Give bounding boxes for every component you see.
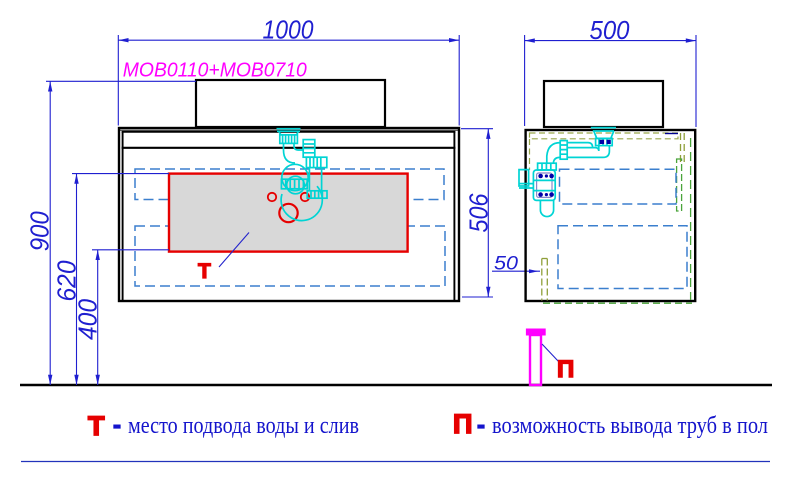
svg-text:место подвода воды и слив: место подвода воды и слив (128, 413, 359, 439)
svg-text:Т: Т (88, 411, 105, 441)
svg-text:-: - (113, 412, 121, 439)
svg-text:1000: 1000 (263, 17, 314, 45)
svg-text:506: 506 (466, 193, 494, 233)
svg-text:500: 500 (590, 17, 630, 45)
svg-text:Т: Т (198, 260, 211, 283)
svg-text:400: 400 (75, 299, 103, 340)
svg-text:620: 620 (53, 261, 81, 302)
svg-text:П: П (557, 356, 574, 383)
svg-text:MOB0110+MOB0710: MOB0110+MOB0710 (123, 59, 308, 82)
svg-text:900: 900 (27, 211, 55, 251)
svg-text:-: - (477, 412, 485, 439)
svg-text:П: П (453, 409, 472, 439)
svg-text:50: 50 (494, 253, 518, 275)
svg-text:возможность вывода труб в пол: возможность вывода труб в пол (492, 413, 768, 439)
